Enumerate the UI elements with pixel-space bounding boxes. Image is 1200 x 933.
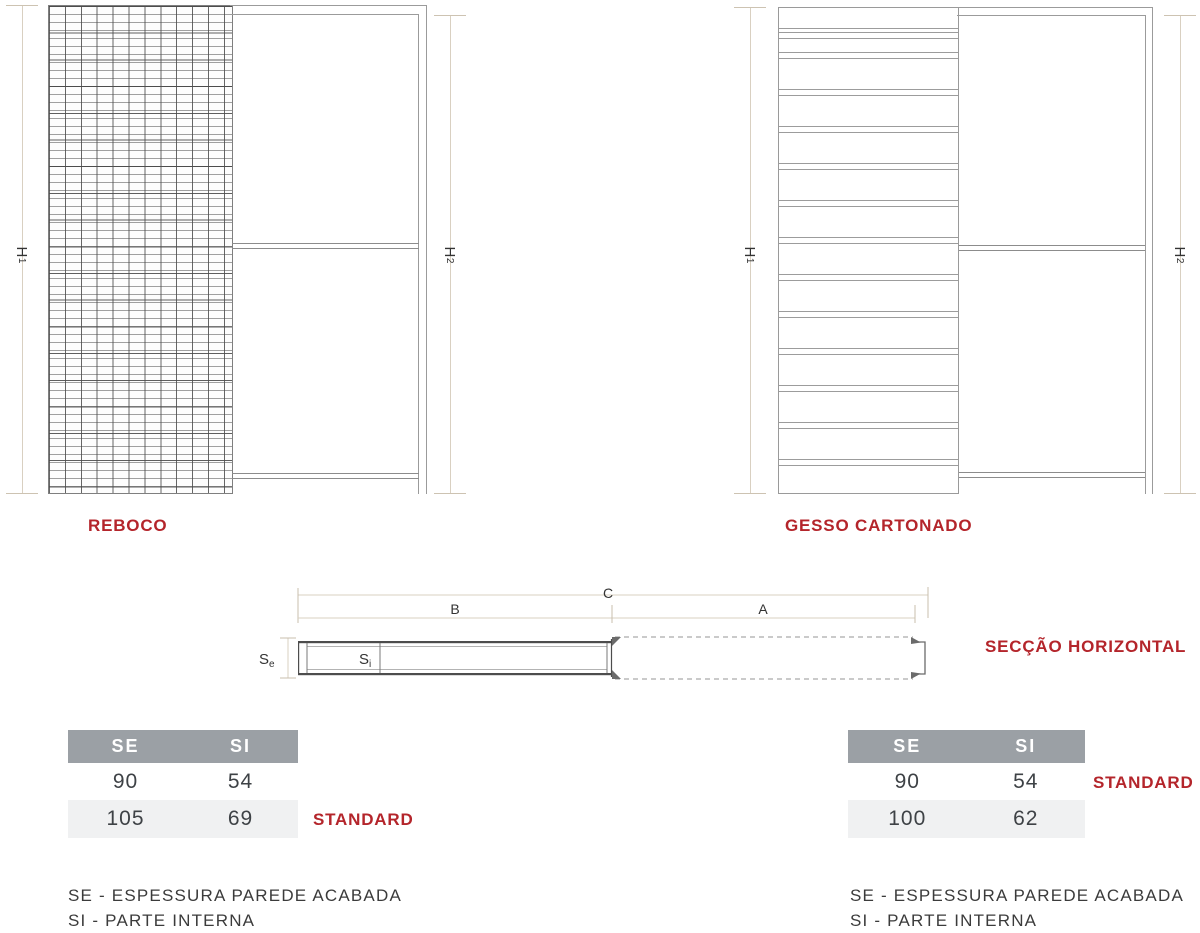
gesso-board-panel [778, 7, 959, 494]
reboco-h1-tick-bottom [6, 493, 38, 494]
gesso-standard-badge: STANDARD [1093, 773, 1194, 793]
reboco-row1-si: 54 [183, 770, 298, 794]
reboco-h2-sub: 2 [445, 258, 456, 264]
pocket-top-chord [298, 641, 612, 643]
reboco-table-header-si: SI [183, 736, 298, 757]
pocket-bottom-chord [298, 673, 612, 675]
gesso-legend: SE - ESPESSURA PAREDE ACABADA SI - PARTE… [850, 883, 1184, 933]
gesso-table-header-se: SE [848, 736, 967, 757]
dim-b-label: B [450, 601, 459, 617]
reboco-legend: SE - ESPESSURA PAREDE ACABADA SI - PARTE… [68, 883, 402, 933]
gesso-frame-rail-top [959, 245, 1145, 251]
gesso-spec-table: SE SI 90 54 100 62 [848, 730, 1085, 838]
gesso-h1-tick-bottom [734, 493, 766, 494]
gesso-row2-se: 100 [848, 807, 967, 831]
gesso-h1-label: H1 [735, 240, 765, 270]
reboco-h1-label: H1 [7, 240, 37, 270]
gesso-table-header-si: SI [967, 736, 1086, 757]
dim-a-label: A [758, 601, 768, 617]
reboco-h2-base: H [442, 247, 459, 258]
gesso-table-header: SE SI [848, 730, 1085, 763]
gesso-h2-tick-top [1164, 15, 1196, 16]
reboco-row2-si: 69 [183, 807, 298, 831]
legend-si-definition: SI - PARTE INTERNA [68, 908, 402, 933]
reboco-h2-tick-bottom [434, 493, 466, 494]
reboco-frame-rail-bottom [232, 473, 419, 479]
si-label: Si [359, 651, 371, 670]
gesso-h1-tick-top [734, 7, 766, 8]
gesso-row1-se: 90 [848, 770, 967, 794]
gesso-h2-tick-bottom [1164, 493, 1196, 494]
reboco-h1-base: H [14, 247, 31, 258]
reboco-diagram: H1 H2 REBOCO [0, 0, 560, 560]
gesso-diagram: H1 H2 GESSO CARTONADO [700, 0, 1200, 560]
si-label-sub: i [369, 659, 371, 670]
gesso-h2-sub: 2 [1175, 258, 1186, 264]
dim-c-label: C [603, 585, 613, 601]
reboco-table-header: SE SI [68, 730, 298, 763]
reboco-h1-sub: 1 [17, 258, 28, 264]
se-label: Se [259, 651, 275, 670]
gesso-row1-si: 54 [967, 770, 1086, 794]
jamb-hook-bottom [911, 672, 921, 679]
gesso-title: GESSO CARTONADO [785, 516, 972, 536]
reboco-title: REBOCO [88, 516, 167, 536]
reboco-h2-tick-top [434, 15, 466, 16]
reboco-row2-se: 105 [68, 807, 183, 831]
reboco-frame-rail-top [232, 243, 419, 249]
table-row: 90 54 [68, 763, 298, 800]
reboco-table-header-se: SE [68, 736, 183, 757]
gesso-h1-sub: 1 [745, 258, 756, 264]
si-label-base: S [359, 651, 369, 668]
section-title: SECÇÃO HORIZONTAL [985, 637, 1186, 657]
gesso-row2-si: 62 [967, 807, 1086, 831]
horizontal-section-drawing: C B A Se Si [255, 583, 945, 692]
gesso-board-stripes [779, 28, 958, 493]
legend-se-definition: SE - ESPESSURA PAREDE ACABADA [68, 883, 402, 908]
legend-si-definition: SI - PARTE INTERNA [850, 908, 1184, 933]
table-row: 90 54 [848, 763, 1085, 800]
gesso-frame-rail-bottom [959, 472, 1145, 478]
reboco-h2-label: H2 [435, 240, 465, 270]
leaf-left-hook-bottom [612, 670, 621, 679]
legend-se-definition: SE - ESPESSURA PAREDE ACABADA [850, 883, 1184, 908]
leaf-left-hook-top [612, 637, 621, 646]
jamb-hook-top [911, 637, 921, 644]
reboco-h1-tick-top [6, 5, 38, 6]
jamb-bracket [912, 642, 925, 674]
gesso-h1-base: H [742, 247, 759, 258]
table-row: 105 69 [68, 800, 298, 838]
gesso-frame-inner [957, 15, 1146, 494]
reboco-row1-se: 90 [68, 770, 183, 794]
reboco-hatched-panel [48, 5, 233, 494]
se-label-base: S [259, 651, 269, 668]
se-label-sub: e [269, 659, 275, 670]
table-row: 100 62 [848, 800, 1085, 838]
gesso-h2-base: H [1172, 247, 1189, 258]
reboco-standard-badge: STANDARD [313, 810, 414, 830]
reboco-frame-inner [230, 14, 419, 494]
reboco-spec-table: SE SI 90 54 105 69 [68, 730, 298, 838]
gesso-h2-label: H2 [1165, 240, 1195, 270]
